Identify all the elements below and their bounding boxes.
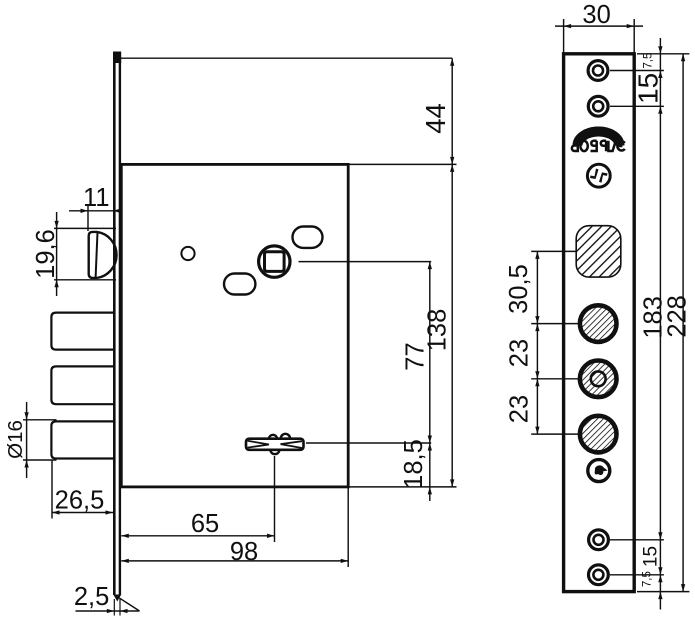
svg-text:23: 23 <box>505 395 533 423</box>
svg-text:65: 65 <box>191 510 219 538</box>
svg-text:77: 77 <box>402 342 430 370</box>
svg-text:19,6: 19,6 <box>32 229 60 279</box>
svg-text:7,5: 7,5 <box>641 571 653 587</box>
svg-text:30: 30 <box>582 1 610 29</box>
svg-text:44: 44 <box>420 103 451 134</box>
svg-text:15: 15 <box>641 546 662 567</box>
svg-text:18,5: 18,5 <box>400 439 428 489</box>
svg-text:11: 11 <box>83 184 109 212</box>
svg-text:98: 98 <box>230 538 258 566</box>
svg-text:23: 23 <box>505 339 533 367</box>
svg-text:30,5: 30,5 <box>505 264 533 314</box>
svg-text:2,5: 2,5 <box>74 583 109 611</box>
svg-text:Ø16: Ø16 <box>4 420 27 459</box>
svg-text:15: 15 <box>633 73 664 104</box>
svg-text:7,5: 7,5 <box>643 53 655 69</box>
svg-text:26,5: 26,5 <box>55 487 105 515</box>
svg-text:228: 228 <box>663 295 691 338</box>
